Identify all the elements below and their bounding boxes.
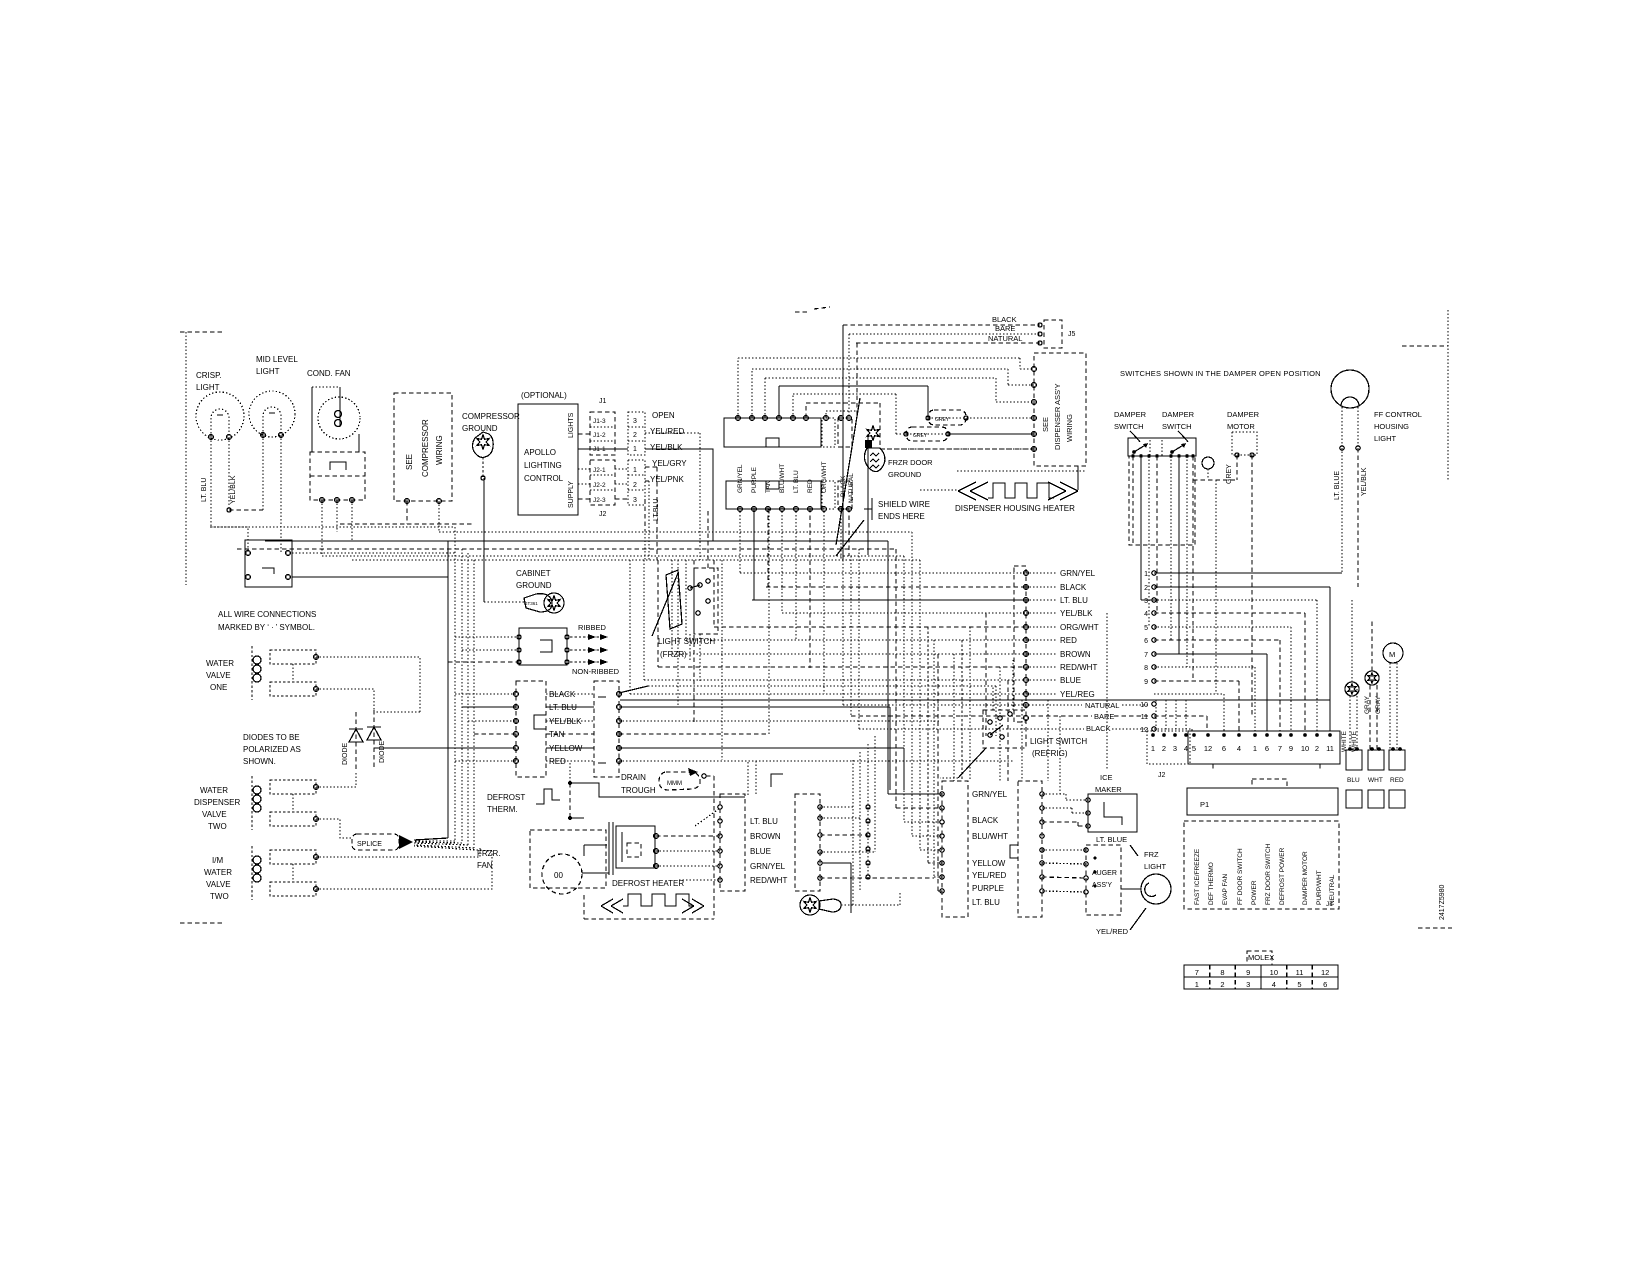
svg-text:SUPPLY: SUPPLY bbox=[568, 481, 575, 508]
svg-text:4: 4 bbox=[1237, 744, 1241, 753]
svg-text:MOTOR: MOTOR bbox=[1227, 422, 1255, 431]
svg-text:CABINET: CABINET bbox=[516, 569, 551, 578]
svg-text:J5: J5 bbox=[1068, 331, 1076, 338]
svg-text:GRN/YEL: GRN/YEL bbox=[1060, 569, 1096, 578]
svg-text:TWO: TWO bbox=[210, 892, 229, 901]
svg-text:5: 5 bbox=[1297, 980, 1301, 989]
svg-text:9: 9 bbox=[1144, 679, 1148, 686]
svg-text:BLACK: BLACK bbox=[992, 315, 1017, 324]
svg-text:NATURAL: NATURAL bbox=[1085, 701, 1119, 710]
svg-text:SEE: SEE bbox=[1041, 417, 1050, 432]
svg-text:YEL/BLK: YEL/BLK bbox=[1060, 609, 1093, 618]
svg-text:RED/WHT: RED/WHT bbox=[750, 876, 787, 885]
svg-text:MARKED BY ‘ · ’ SYMBOL.: MARKED BY ‘ · ’ SYMBOL. bbox=[218, 623, 315, 632]
svg-text:ICE: ICE bbox=[1100, 773, 1113, 782]
svg-text:FRZR.: FRZR. bbox=[477, 849, 501, 858]
svg-text:12: 12 bbox=[1140, 727, 1148, 734]
svg-text:2417Z5980: 2417Z5980 bbox=[1439, 884, 1446, 920]
svg-text:MID LEVEL: MID LEVEL bbox=[256, 355, 298, 364]
svg-text:GT361: GT361 bbox=[524, 601, 538, 606]
svg-text:RED/WHT: RED/WHT bbox=[1060, 663, 1097, 672]
svg-text:COMPRESSOR: COMPRESSOR bbox=[462, 412, 520, 421]
svg-text:TWO: TWO bbox=[208, 822, 227, 831]
svg-text:2: 2 bbox=[633, 482, 637, 489]
svg-text:4: 4 bbox=[1272, 980, 1276, 989]
svg-text:DRAIN: DRAIN bbox=[621, 773, 646, 782]
svg-text:DAMPER: DAMPER bbox=[1227, 410, 1260, 419]
svg-text:BARE: BARE bbox=[1094, 712, 1114, 721]
svg-text:ASS'Y: ASS'Y bbox=[1092, 882, 1112, 889]
svg-text:FF CONTROL: FF CONTROL bbox=[1374, 410, 1422, 419]
svg-text:RIBBED: RIBBED bbox=[578, 623, 607, 632]
svg-text:GRN/YEL: GRN/YEL bbox=[972, 790, 1008, 799]
svg-text:WATER: WATER bbox=[204, 868, 232, 877]
svg-text:1: 1 bbox=[1195, 980, 1199, 989]
svg-text:AUGER: AUGER bbox=[1092, 870, 1117, 877]
svg-text:POLARIZED AS: POLARIZED AS bbox=[243, 745, 301, 754]
svg-text:SWITCHES SHOWN IN THE DAMPER O: SWITCHES SHOWN IN THE DAMPER OPEN POSITI… bbox=[1120, 369, 1321, 378]
svg-text:11: 11 bbox=[1326, 744, 1334, 753]
svg-text:7: 7 bbox=[1278, 744, 1282, 753]
svg-text:DEF THERMO: DEF THERMO bbox=[1208, 862, 1215, 905]
svg-text:YEL/BLK: YEL/BLK bbox=[650, 443, 683, 452]
svg-text:P1: P1 bbox=[1200, 800, 1209, 809]
svg-text:OPEN: OPEN bbox=[652, 411, 675, 420]
svg-text:SEE: SEE bbox=[405, 454, 414, 470]
svg-text:GROUND: GROUND bbox=[462, 424, 498, 433]
svg-text:EVAP FAN: EVAP FAN bbox=[1222, 874, 1229, 905]
svg-text:GREY: GREY bbox=[1226, 464, 1233, 484]
svg-text:GRN/YEL: GRN/YEL bbox=[750, 862, 786, 871]
svg-text:BLUE: BLUE bbox=[750, 847, 771, 856]
svg-text:RED: RED bbox=[1060, 636, 1077, 645]
svg-text:YELLOW: YELLOW bbox=[972, 859, 1006, 868]
svg-text:DAMPER: DAMPER bbox=[1162, 410, 1195, 419]
svg-text:10: 10 bbox=[1270, 968, 1278, 977]
svg-text:APOLLO: APOLLO bbox=[524, 448, 556, 457]
svg-text:PURP/WHT: PURP/WHT bbox=[1316, 870, 1323, 905]
svg-text:3: 3 bbox=[633, 497, 637, 504]
svg-text:SHOWN.: SHOWN. bbox=[243, 757, 276, 766]
svg-text:12: 12 bbox=[1204, 744, 1212, 753]
svg-text:J2-1: J2-1 bbox=[593, 467, 606, 474]
svg-text:DIODES TO BE: DIODES TO BE bbox=[243, 733, 300, 742]
svg-text:SWITCH: SWITCH bbox=[1162, 422, 1192, 431]
svg-text:1: 1 bbox=[1253, 744, 1257, 753]
svg-text:DAMPER: DAMPER bbox=[1114, 410, 1147, 419]
svg-text:BLU/WHT: BLU/WHT bbox=[972, 832, 1008, 841]
svg-text:J1-1: J1-1 bbox=[593, 446, 606, 453]
svg-text:GREY: GREY bbox=[935, 417, 950, 423]
svg-text:6: 6 bbox=[1323, 980, 1327, 989]
svg-text:SWITCH: SWITCH bbox=[1114, 422, 1144, 431]
svg-text:VALVE: VALVE bbox=[206, 880, 231, 889]
svg-text:THERM.: THERM. bbox=[487, 805, 518, 814]
svg-text:J2: J2 bbox=[599, 511, 607, 518]
svg-text:BLU: BLU bbox=[1347, 777, 1360, 784]
svg-text:LIGHT SWITCH: LIGHT SWITCH bbox=[658, 637, 715, 646]
svg-text:WATER: WATER bbox=[200, 786, 228, 795]
svg-text:4: 4 bbox=[1144, 611, 1148, 618]
svg-text:HOUSING: HOUSING bbox=[1374, 422, 1409, 431]
svg-text:LT. BLU: LT. BLU bbox=[1060, 596, 1088, 605]
svg-text:3: 3 bbox=[1173, 744, 1177, 753]
svg-text:LIGHT: LIGHT bbox=[1144, 862, 1167, 871]
svg-text:DEFROST HEATER: DEFROST HEATER bbox=[612, 879, 684, 888]
svg-text:ALL WIRE CONNECTIONS: ALL WIRE CONNECTIONS bbox=[218, 610, 316, 619]
svg-text:5: 5 bbox=[1144, 625, 1148, 632]
svg-text:DIODE: DIODE bbox=[342, 743, 349, 766]
svg-text:2: 2 bbox=[1162, 744, 1166, 753]
svg-text:(REFRIG): (REFRIG) bbox=[1032, 749, 1068, 758]
svg-text:MAKER: MAKER bbox=[1095, 785, 1122, 794]
svg-text:DAMPER MOTOR: DAMPER MOTOR bbox=[1302, 851, 1309, 905]
svg-text:00: 00 bbox=[554, 871, 563, 880]
svg-text:DEFROST: DEFROST bbox=[487, 793, 525, 802]
svg-text:LIGHT: LIGHT bbox=[256, 367, 280, 376]
svg-text:POWER: POWER bbox=[1251, 880, 1258, 905]
svg-text:FAST ICE/FREEZE: FAST ICE/FREEZE bbox=[1194, 848, 1201, 905]
svg-text:J2-3: J2-3 bbox=[593, 497, 606, 504]
svg-text:6: 6 bbox=[1265, 744, 1269, 753]
svg-text:2: 2 bbox=[1220, 980, 1224, 989]
svg-text:BLU/WHT: BLU/WHT bbox=[779, 464, 786, 493]
svg-text:8: 8 bbox=[1144, 665, 1148, 672]
svg-text:10: 10 bbox=[1140, 702, 1148, 709]
svg-text:DIODE: DIODE bbox=[379, 741, 386, 764]
svg-text:YEL/BLK: YEL/BLK bbox=[230, 475, 237, 504]
svg-text:DISPENSER ASS'Y: DISPENSER ASS'Y bbox=[1053, 384, 1062, 450]
svg-text:5: 5 bbox=[1192, 744, 1196, 753]
svg-text:LT. BLU: LT. BLU bbox=[201, 478, 208, 502]
svg-text:3: 3 bbox=[633, 418, 637, 425]
svg-text:7: 7 bbox=[1195, 968, 1199, 977]
svg-text:LT. BLUE: LT. BLUE bbox=[1096, 835, 1127, 844]
svg-text:WHITE: WHITE bbox=[1341, 730, 1348, 752]
svg-text:DISPENSER HOUSING HEATER: DISPENSER HOUSING HEATER bbox=[955, 504, 1075, 513]
svg-text:1: 1 bbox=[633, 446, 637, 453]
svg-text:COMPRESSOR: COMPRESSOR bbox=[421, 419, 430, 477]
svg-text:WIRING: WIRING bbox=[435, 435, 444, 465]
svg-text:DEFROST POWER: DEFROST POWER bbox=[1279, 847, 1286, 905]
svg-text:LIGHTING: LIGHTING bbox=[524, 461, 562, 470]
svg-text:7: 7 bbox=[1144, 652, 1148, 659]
svg-text:LT.BLU: LT.BLU bbox=[653, 499, 660, 521]
svg-text:FRZ DOOR SWITCH: FRZ DOOR SWITCH bbox=[1265, 843, 1272, 905]
svg-text:BROWN: BROWN bbox=[1060, 650, 1091, 659]
svg-text:CRISP.: CRISP. bbox=[196, 371, 222, 380]
svg-text:VALVE: VALVE bbox=[206, 671, 231, 680]
svg-text:M: M bbox=[1389, 650, 1395, 659]
svg-text:11: 11 bbox=[1296, 968, 1304, 977]
svg-text:J1-3: J1-3 bbox=[593, 418, 606, 425]
svg-text:CONTROL: CONTROL bbox=[524, 474, 564, 483]
svg-text:GROUND: GROUND bbox=[888, 470, 922, 479]
svg-text:LT. BLU: LT. BLU bbox=[972, 898, 1000, 907]
svg-text:FF DOOR SWITCH: FF DOOR SWITCH bbox=[1237, 848, 1244, 905]
svg-text:GROUND: GROUND bbox=[516, 581, 552, 590]
svg-text:WATER: WATER bbox=[206, 659, 234, 668]
svg-text:10: 10 bbox=[1301, 744, 1309, 753]
svg-text:YEL/BLK: YEL/BLK bbox=[1361, 467, 1368, 496]
svg-text:J1: J1 bbox=[1326, 901, 1333, 908]
svg-text:1: 1 bbox=[633, 467, 637, 474]
svg-text:PURPLE: PURPLE bbox=[751, 466, 758, 493]
svg-text:6: 6 bbox=[1144, 638, 1148, 645]
svg-text:DISPENSER: DISPENSER bbox=[194, 798, 240, 807]
svg-text:2: 2 bbox=[1144, 585, 1148, 592]
svg-text:8: 8 bbox=[1220, 968, 1224, 977]
svg-text:VALVE: VALVE bbox=[202, 810, 227, 819]
svg-text:LIGHT SWITCH: LIGHT SWITCH bbox=[1030, 737, 1087, 746]
svg-text:RED: RED bbox=[1390, 777, 1404, 784]
svg-text:9: 9 bbox=[1246, 968, 1250, 977]
svg-text:3: 3 bbox=[1246, 980, 1250, 989]
svg-text:1: 1 bbox=[1144, 571, 1148, 578]
svg-text:BLUE: BLUE bbox=[1060, 676, 1081, 685]
svg-text:LT. BLUE: LT. BLUE bbox=[1334, 471, 1341, 500]
svg-text:ENDS HERE: ENDS HERE bbox=[878, 512, 925, 521]
svg-text:FAN: FAN bbox=[477, 861, 493, 870]
svg-text:SPLICE: SPLICE bbox=[357, 841, 382, 848]
svg-text:COND. FAN: COND. FAN bbox=[307, 369, 351, 378]
svg-text:I/M: I/M bbox=[212, 856, 223, 865]
svg-text:2: 2 bbox=[1315, 744, 1319, 753]
svg-text:GREY: GREY bbox=[913, 433, 928, 439]
svg-text:FRZR DOOR: FRZR DOOR bbox=[888, 458, 933, 467]
svg-text:LIGHT: LIGHT bbox=[1374, 434, 1397, 443]
svg-text:(OPTIONAL): (OPTIONAL) bbox=[521, 391, 567, 400]
svg-text:LT. BLU: LT. BLU bbox=[750, 817, 778, 826]
svg-text:PURPLE: PURPLE bbox=[972, 884, 1004, 893]
svg-text:BLACK: BLACK bbox=[972, 816, 999, 825]
svg-text:TROUGH: TROUGH bbox=[621, 786, 656, 795]
svg-text:MOLEX: MOLEX bbox=[1248, 953, 1274, 962]
svg-text:J2-2: J2-2 bbox=[593, 482, 606, 489]
svg-text:YEL/PNK: YEL/PNK bbox=[650, 475, 684, 484]
svg-text:LIGHTS: LIGHTS bbox=[568, 412, 575, 438]
svg-text:BLACK: BLACK bbox=[1060, 583, 1087, 592]
svg-text:YEL/RED: YEL/RED bbox=[1096, 927, 1129, 936]
svg-text:MMM: MMM bbox=[667, 781, 682, 787]
svg-text:ORG/WHT: ORG/WHT bbox=[1060, 623, 1099, 632]
svg-text:ONE: ONE bbox=[210, 683, 227, 692]
svg-text:NATURAL: NATURAL bbox=[988, 334, 1022, 343]
svg-text:YEL/GRY: YEL/GRY bbox=[652, 459, 687, 468]
svg-text:WHT: WHT bbox=[1368, 777, 1383, 784]
svg-text:11: 11 bbox=[1141, 714, 1148, 721]
svg-text:9: 9 bbox=[1289, 744, 1293, 753]
svg-text:1: 1 bbox=[1151, 744, 1155, 753]
svg-text:WIRING: WIRING bbox=[1065, 414, 1074, 442]
svg-text:NON-RIBBED: NON-RIBBED bbox=[572, 667, 620, 676]
svg-text:GRAY: GRAY bbox=[1375, 695, 1382, 714]
svg-text:YEL/REG: YEL/REG bbox=[1060, 690, 1095, 699]
svg-text:SHIELD WIRE: SHIELD WIRE bbox=[878, 500, 930, 509]
svg-text:YEL/RED: YEL/RED bbox=[972, 871, 1006, 880]
svg-text:BROWN: BROWN bbox=[750, 832, 781, 841]
svg-text:J1: J1 bbox=[599, 398, 607, 405]
svg-text:2: 2 bbox=[633, 432, 637, 439]
svg-text:3: 3 bbox=[1144, 598, 1148, 605]
svg-text:LIGHT: LIGHT bbox=[196, 383, 220, 392]
svg-text:YEL/RED: YEL/RED bbox=[650, 427, 684, 436]
svg-text:GRN/YEL: GRN/YEL bbox=[737, 464, 744, 493]
svg-text:12: 12 bbox=[1321, 968, 1329, 977]
svg-text:J1-2: J1-2 bbox=[593, 432, 606, 439]
svg-text:6: 6 bbox=[1222, 744, 1226, 753]
svg-text:FRZ: FRZ bbox=[1144, 850, 1159, 859]
svg-text:J2: J2 bbox=[1158, 772, 1166, 779]
